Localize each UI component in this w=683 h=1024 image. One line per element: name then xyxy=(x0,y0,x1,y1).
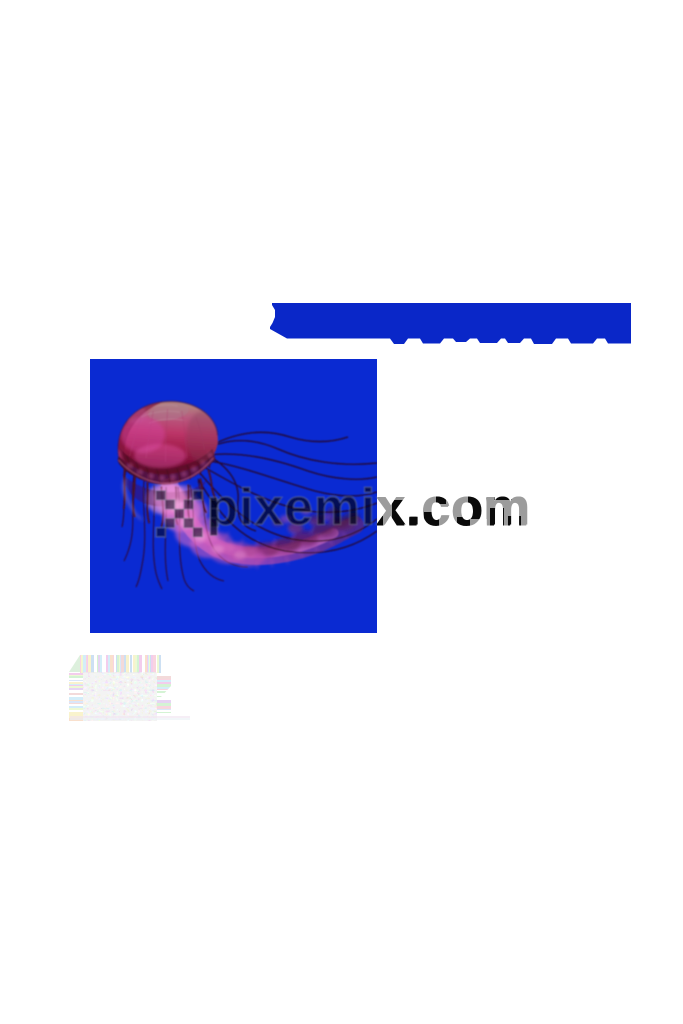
svg-text:pixemix.com: pixemix.com xyxy=(207,479,378,537)
